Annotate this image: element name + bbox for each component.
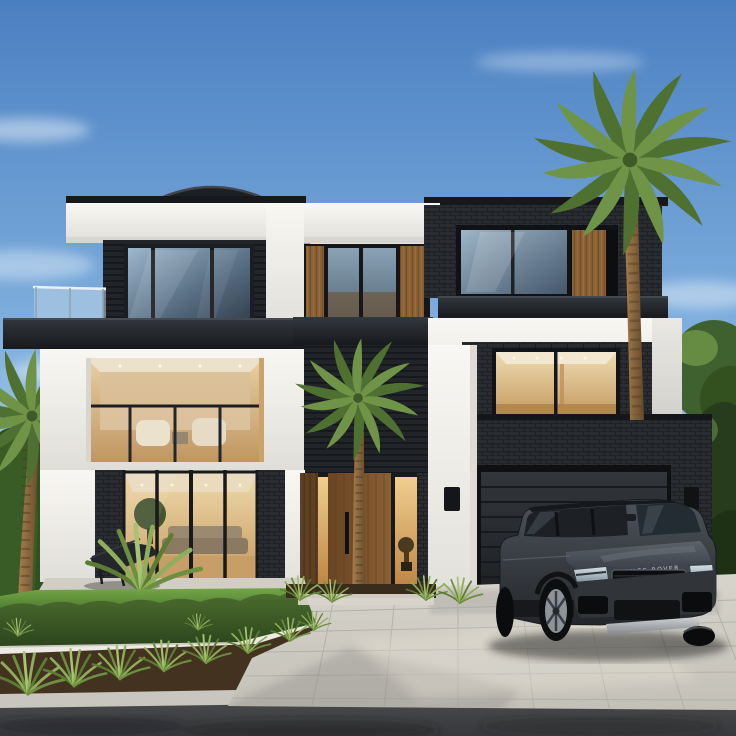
suv-intake-right xyxy=(682,592,712,612)
brick-pillar-right xyxy=(258,470,285,580)
door-sidelight-left xyxy=(318,477,328,595)
cloud-wisp xyxy=(475,52,645,72)
middle-floor-opening xyxy=(86,358,264,462)
suv-lower-grille xyxy=(614,600,680,620)
ground-white-column xyxy=(40,470,95,582)
left-roof-edge xyxy=(66,196,306,204)
entry-step xyxy=(298,594,434,605)
wall-light-left xyxy=(444,487,460,511)
door-handle xyxy=(345,512,349,554)
right-wing-lit-window xyxy=(492,348,620,420)
interior-ceiling xyxy=(86,358,264,372)
suv-intake-left xyxy=(578,596,608,614)
suv-rear-wheel xyxy=(496,587,514,637)
photo-canvas: RANGE ROVER xyxy=(0,0,736,736)
white-pillar xyxy=(428,345,477,618)
suv: RANGE ROVER xyxy=(488,499,728,661)
center-fascia-band xyxy=(293,317,433,345)
right-wing-window-alcove xyxy=(456,225,618,298)
balcony-fascia-band xyxy=(3,318,304,349)
alcove-wood-slats xyxy=(572,230,606,296)
door-sidelight-right xyxy=(395,477,417,597)
balcony-glass-railing-upper xyxy=(33,287,106,320)
suv-mirror xyxy=(624,514,636,521)
potted-plant xyxy=(398,537,414,553)
white-corner-column xyxy=(266,203,304,335)
house-exterior-photo: RANGE ROVER xyxy=(0,0,736,736)
